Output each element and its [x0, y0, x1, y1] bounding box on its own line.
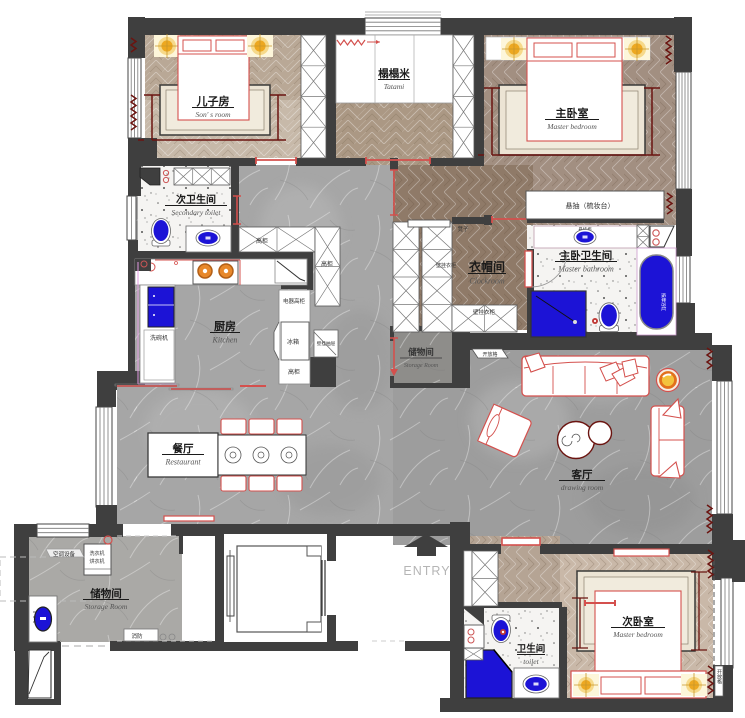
- svg-text:drawing room: drawing room: [561, 483, 604, 492]
- svg-text:Kitchen: Kitchen: [212, 336, 238, 345]
- svg-text:衣帽间: 衣帽间: [469, 259, 505, 274]
- svg-text:消防: 消防: [131, 632, 143, 640]
- svg-text:Storage Room: Storage Room: [85, 602, 128, 611]
- svg-text:厨房: 厨房: [214, 319, 236, 333]
- svg-text:次卧室: 次卧室: [622, 615, 654, 628]
- svg-text:ENTRY: ENTRY: [403, 564, 450, 578]
- svg-text:凳子: 凳子: [457, 225, 469, 233]
- svg-text:Son' s room: Son' s room: [195, 110, 231, 119]
- svg-text:空调设备: 空调设备: [53, 550, 76, 558]
- svg-text:悬抽（梳妆台）: 悬抽（梳妆台）: [566, 201, 615, 210]
- svg-text:储物间: 储物间: [90, 587, 122, 600]
- svg-text:开放格: 开放格: [716, 669, 722, 685]
- svg-text:洗碗机: 洗碗机: [150, 334, 168, 342]
- svg-text:高柜: 高柜: [321, 260, 333, 268]
- svg-text:卫生间: 卫生间: [517, 643, 546, 655]
- svg-text:壁挂衣柜: 壁挂衣柜: [473, 308, 496, 316]
- svg-text:冰箱: 冰箱: [287, 338, 299, 346]
- svg-text:Master bathroom: Master bathroom: [557, 265, 614, 274]
- svg-text:Secondary toilet: Secondary toilet: [172, 208, 222, 217]
- svg-text:壁挂抽屉: 壁挂抽屉: [317, 340, 336, 347]
- svg-text:储物间: 储物间: [407, 347, 434, 357]
- svg-text:Restaurant: Restaurant: [164, 458, 201, 467]
- svg-text:toilet: toilet: [523, 657, 539, 666]
- svg-text:次卫生间: 次卫生间: [176, 193, 216, 206]
- svg-text:洗衣机: 洗衣机: [89, 550, 104, 557]
- svg-text:开放格: 开放格: [482, 351, 497, 358]
- svg-text:榻榻米: 榻榻米: [378, 67, 410, 80]
- svg-text:Clockroom: Clockroom: [469, 277, 504, 286]
- svg-text:主卧室: 主卧室: [556, 106, 589, 120]
- svg-text:按摩浴缸: 按摩浴缸: [660, 293, 667, 311]
- svg-text:餐厅: 餐厅: [172, 442, 194, 455]
- svg-text:烘衣机: 烘衣机: [89, 558, 104, 565]
- svg-text:主卧卫生间: 主卧卫生间: [560, 249, 613, 262]
- svg-text:高柜: 高柜: [288, 368, 300, 376]
- svg-text:客厅: 客厅: [571, 468, 593, 481]
- svg-text:Master bedroom: Master bedroom: [612, 630, 663, 639]
- svg-text:壁挂衣柜: 壁挂衣柜: [436, 262, 456, 269]
- svg-text:电器高柜: 电器高柜: [283, 297, 306, 305]
- svg-text:高柜: 高柜: [256, 237, 268, 245]
- svg-text:儿子房: 儿子房: [196, 94, 230, 108]
- svg-text:Tatami: Tatami: [384, 82, 405, 91]
- svg-text:Master bedroom: Master bedroom: [546, 122, 597, 131]
- svg-text:Storage Room: Storage Room: [404, 363, 439, 369]
